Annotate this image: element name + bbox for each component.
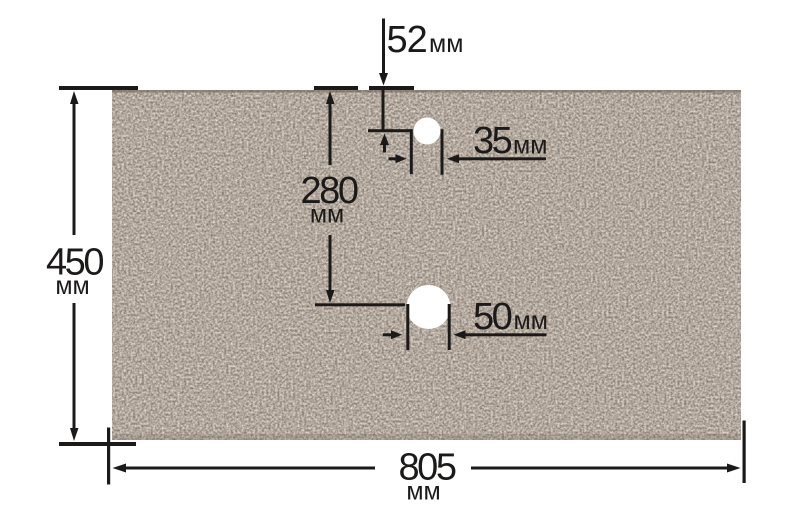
svg-text:35: 35 — [473, 120, 512, 162]
svg-text:мм: мм — [310, 201, 344, 229]
svg-text:мм: мм — [513, 132, 547, 160]
svg-text:50: 50 — [473, 296, 512, 338]
svg-text:мм: мм — [514, 307, 548, 335]
svg-text:мм: мм — [406, 478, 440, 506]
svg-text:мм: мм — [429, 30, 463, 58]
svg-text:мм: мм — [55, 272, 89, 300]
svg-text:52: 52 — [387, 19, 427, 61]
